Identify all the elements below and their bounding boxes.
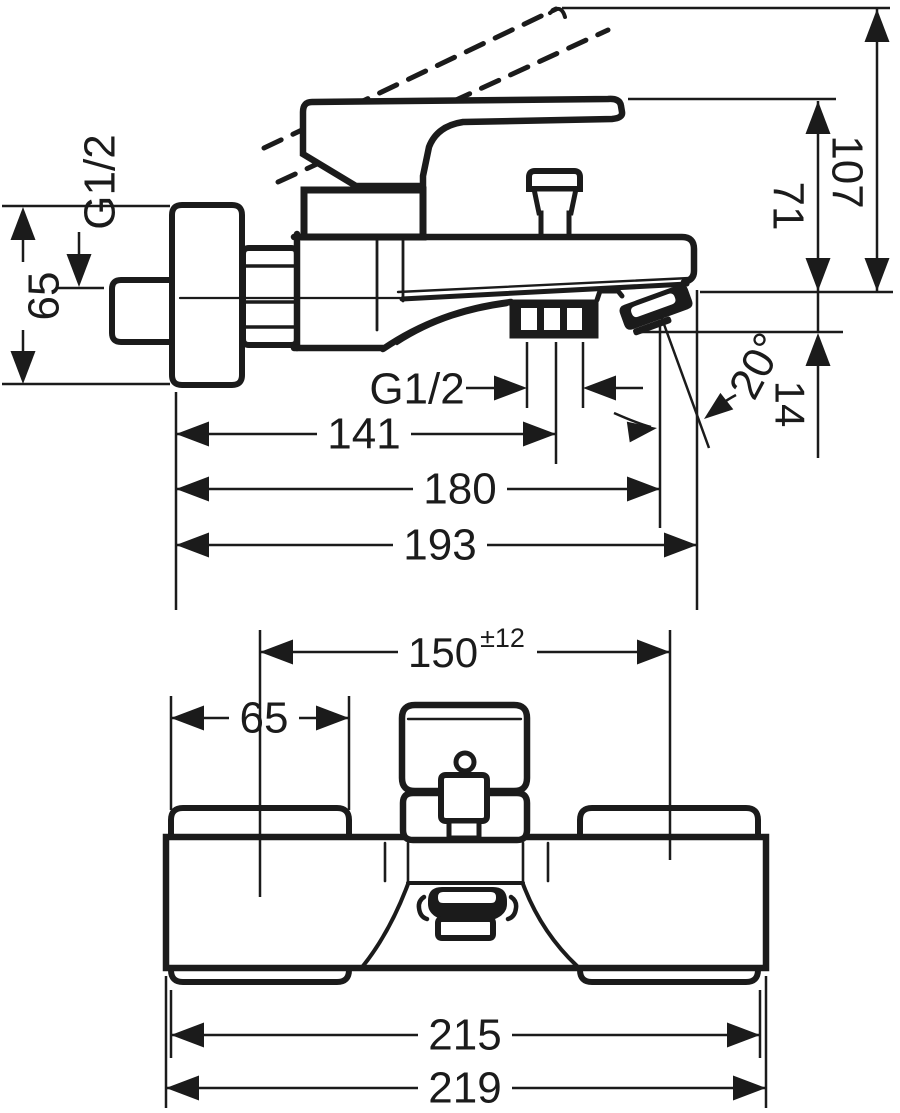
drawing-page: G1/265711071420°G1/2141180193 150±126521… [0,0,900,1113]
dimension-arrowhead [171,1023,204,1048]
shower-stub-neck [534,189,576,237]
label-dim-150: 150±12 [408,623,525,676]
raised-handle-tip [550,9,565,17]
dimension-arrowhead [494,376,527,401]
label-dim-180: 180 [423,465,496,514]
dimension-arrowhead [11,351,36,384]
dimension-arrowhead [583,376,616,401]
dimension-arrowhead [176,422,209,447]
side-view-labels: G1/265711071420°G1/2141180193 [20,134,872,569]
dimension-arrowhead [806,258,831,291]
wall-inlet-connector [112,280,172,342]
technical-drawing-canvas: G1/265711071420°G1/2141180193 150±126521… [0,0,900,1113]
label-dim-215: 215 [428,1011,501,1060]
label-dim-65-side: 65 [20,272,69,321]
spout-joint-line [402,284,687,299]
dimension-line [661,316,709,448]
diverter-stem-base [449,821,479,838]
dimension-arrowhead [664,533,697,558]
label-dim-141: 141 [327,410,400,459]
dimension-arrowhead [316,706,349,731]
dimension-arrowhead [260,640,293,665]
label-dim-71: 71 [764,182,813,231]
label-dim-107: 107 [823,135,872,208]
dimension-arrowhead [806,333,831,366]
wall-escutcheon [172,205,242,385]
dimension-arrowhead [865,258,890,291]
shower-stub-flange [529,171,580,189]
dimension-arrowhead [11,207,36,240]
hose-outlet-thread-slot [521,308,537,330]
label-dim-14: 14 [767,381,814,428]
dimension-arrowhead [733,1076,766,1101]
dimension-arrowhead [523,422,556,447]
spout-front-face [438,919,493,938]
label-g12-wall-inlet: G1/2 [76,134,125,229]
dimension-arrowhead [176,477,209,502]
dimension-arrowhead [704,393,733,419]
body-top-edge [294,237,694,282]
dimension-arrowhead [637,640,670,665]
dimension-arrowhead [727,1023,760,1048]
diverter-knob [456,753,474,771]
label-dim-219: 219 [428,1064,501,1113]
hose-outlet-thread-slot [544,308,560,330]
label-dim-65-plan: 65 [240,694,289,743]
dimension-arrowhead [171,706,204,731]
dimension-arrowhead [627,477,660,502]
spout-belly-inner-curve [397,305,507,344]
aerator-outlet-group [618,282,697,338]
dimension-arrowhead [806,101,831,134]
side-view-geometry [112,9,697,385]
dimension-arrowhead [865,9,890,42]
valve-dome [304,190,423,237]
spout-underside-notch [597,291,622,300]
union-nut [243,248,297,345]
diverter-stem [441,775,487,821]
dimension-arrowhead [67,254,92,287]
label-dim-193: 193 [403,521,476,570]
aerator-slot [438,892,496,903]
dimension-arrowhead [176,533,209,558]
label-g12-hose-outlet: G1/2 [369,365,464,414]
plan-view-geometry [166,705,766,982]
dimension-arrowhead [166,1076,199,1101]
hose-outlet-thread-slot [567,308,582,330]
